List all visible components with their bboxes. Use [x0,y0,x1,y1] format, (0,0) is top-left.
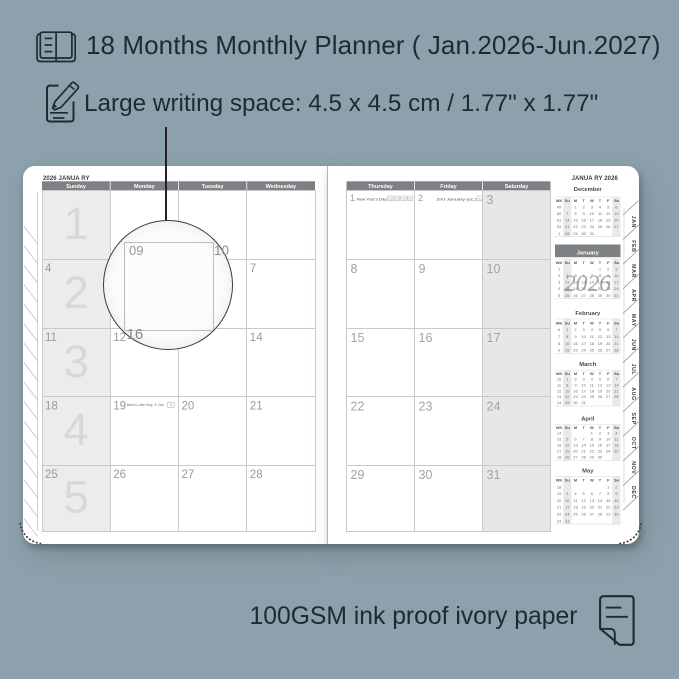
svg-text:19: 19 [598,388,603,393]
svg-text:24: 24 [614,286,619,291]
svg-text:24: 24 [590,224,595,229]
svg-text:8: 8 [574,211,577,216]
svg-text:29: 29 [590,455,595,460]
svg-text:9: 9 [574,382,577,387]
svg-text:4: 4 [574,491,577,496]
svg-text:13: 13 [606,382,611,387]
svg-text:CA: CA [395,197,399,201]
svg-text:29: 29 [573,231,578,236]
svg-text:17: 17 [614,280,619,285]
svg-text:MAY: MAY [630,314,636,327]
svg-text:Monday: Monday [134,184,156,190]
svg-text:Friday: Friday [440,184,457,190]
svg-text:15: 15 [573,218,578,223]
svg-text:14: 14 [614,382,619,387]
svg-text:WK: WK [556,260,563,265]
svg-text:2026: 2026 [564,271,611,297]
svg-text:23: 23 [573,394,578,399]
svg-text:27: 27 [606,348,611,353]
svg-text:7: 7 [599,491,602,496]
svg-text:T: T [582,260,585,265]
svg-text:DEC: DEC [630,486,636,499]
svg-text:6: 6 [558,327,561,332]
svg-text:25: 25 [614,449,619,454]
svg-text:20: 20 [573,449,578,454]
svg-text:27: 27 [182,469,195,481]
svg-text:F: F [607,425,610,430]
svg-text:1: 1 [591,431,594,436]
svg-text:10: 10 [487,262,501,276]
svg-text:1: 1 [574,204,577,209]
svg-text:4: 4 [599,204,602,209]
svg-text:A: A [170,403,173,407]
svg-text:JUN: JUN [630,339,636,351]
svg-text:21: 21 [250,401,263,413]
svg-text:MAR: MAR [630,264,636,278]
svg-text:18: 18 [590,341,595,346]
svg-text:19: 19 [581,505,586,510]
svg-text:March: March [579,362,597,368]
svg-text:23: 23 [557,518,562,523]
svg-text:14: 14 [565,218,570,223]
svg-text:NOV: NOV [630,461,636,474]
svg-text:WK: WK [556,371,563,376]
svg-text:2: 2 [558,273,561,278]
svg-text:25: 25 [45,469,58,481]
svg-text:12: 12 [598,334,603,339]
svg-text:T: T [582,425,585,430]
svg-text:3: 3 [63,336,88,387]
svg-text:28: 28 [565,231,570,236]
svg-text:21: 21 [557,505,562,510]
svg-text:22: 22 [606,505,611,510]
svg-text:JANUA RY 2026: JANUA RY 2026 [572,176,619,182]
svg-text:15: 15 [565,388,570,393]
svg-text:M: M [574,478,578,483]
svg-text:17: 17 [590,218,595,223]
svg-text:15: 15 [565,341,570,346]
svg-text:9: 9 [599,437,602,442]
svg-text:31: 31 [581,400,586,405]
svg-text:T: T [599,260,602,265]
svg-text:9: 9 [574,334,577,339]
svg-text:14: 14 [581,443,586,448]
svg-text:24: 24 [606,449,611,454]
svg-text:Su: Su [565,198,571,203]
svg-text:28: 28 [581,455,586,460]
svg-text:27: 27 [606,394,611,399]
svg-text:W: W [590,371,594,376]
svg-text:26: 26 [606,224,611,229]
svg-text:January: January [577,251,600,257]
svg-text:27: 27 [590,512,595,517]
svg-text:18: 18 [614,443,619,448]
svg-text:28: 28 [598,512,603,517]
svg-text:Su: Su [565,425,571,430]
svg-text:Tuesday: Tuesday [202,184,225,190]
svg-text:SEP: SEP [630,412,636,424]
svg-text:16: 16 [557,443,562,448]
svg-text:27: 27 [573,455,578,460]
svg-text:5: 5 [558,293,561,298]
svg-text:31: 31 [614,293,619,298]
svg-text:W: W [590,198,594,203]
svg-text:T: T [599,198,602,203]
svg-text:26: 26 [598,394,603,399]
svg-text:14: 14 [557,431,562,436]
svg-text:30: 30 [573,400,578,405]
svg-text:T: T [599,425,602,430]
svg-text:13: 13 [557,394,562,399]
svg-text:W: W [590,320,594,325]
svg-text:AUG: AUG [630,387,636,400]
svg-text:10: 10 [565,498,570,503]
svg-text:2026 JANUA RY: 2026 JANUA RY [43,176,90,182]
svg-text:8: 8 [607,491,610,496]
svg-text:May: May [582,469,594,475]
svg-text:14: 14 [598,498,603,503]
svg-text:49: 49 [557,204,562,209]
svg-text:3: 3 [487,193,494,207]
svg-text:20: 20 [557,498,562,503]
svg-text:28: 28 [250,469,263,481]
svg-text:3: 3 [583,327,586,332]
svg-text:52: 52 [557,224,562,229]
svg-text:6: 6 [607,327,610,332]
svg-text:16: 16 [581,218,586,223]
svg-text:10: 10 [581,382,586,387]
svg-text:8: 8 [558,341,561,346]
svg-text:11: 11 [573,498,578,503]
svg-text:JAN: JAN [630,216,636,228]
svg-text:Martin Luther King, Jr. Day: Martin Luther King, Jr. Day [127,403,164,407]
svg-text:12: 12 [557,388,562,393]
svg-text:Sa: Sa [614,371,620,376]
svg-text:24: 24 [487,400,501,414]
svg-text:4: 4 [591,377,594,382]
svg-text:WK: WK [556,320,563,325]
svg-text:M: M [574,425,578,430]
svg-text:2nd January (sc.): 2nd January (sc.) [437,197,478,202]
svg-text:10: 10 [581,334,586,339]
svg-text:1: 1 [350,193,355,203]
svg-text:17: 17 [581,341,586,346]
svg-text:17: 17 [606,443,611,448]
svg-text:14: 14 [614,334,619,339]
svg-text:21: 21 [598,505,603,510]
svg-text:31: 31 [590,231,595,236]
svg-text:T: T [599,478,602,483]
svg-text:5: 5 [583,491,586,496]
svg-text:4: 4 [591,327,594,332]
svg-text:F: F [607,478,610,483]
svg-text:16: 16 [573,388,578,393]
svg-text:11: 11 [557,382,562,387]
svg-text:W: W [590,260,594,265]
svg-text:18: 18 [557,455,562,460]
svg-text:US: US [388,197,392,201]
svg-text:22: 22 [565,394,570,399]
svg-text:24: 24 [581,394,586,399]
svg-text:3: 3 [591,204,594,209]
svg-text:25: 25 [598,224,603,229]
svg-text:12: 12 [606,211,611,216]
svg-text:Thursday: Thursday [368,184,394,190]
svg-text:2: 2 [63,267,88,318]
svg-text:23: 23 [614,505,619,510]
svg-text:14: 14 [557,400,562,405]
svg-text:2: 2 [418,193,423,203]
svg-text:Su: Su [565,260,571,265]
svg-text:18: 18 [557,484,562,489]
svg-text:5: 5 [63,472,88,523]
svg-text:21: 21 [614,341,619,346]
svg-text:FEB: FEB [630,240,636,252]
svg-text:26: 26 [598,348,603,353]
svg-text:17: 17 [487,331,501,345]
svg-text:22: 22 [565,348,570,353]
svg-text:12: 12 [565,443,570,448]
svg-text:22: 22 [590,449,595,454]
svg-text:15: 15 [606,498,611,503]
svg-text:19: 19 [598,341,603,346]
svg-text:7: 7 [558,334,561,339]
svg-text:25: 25 [590,348,595,353]
svg-text:18: 18 [590,388,595,393]
svg-text:22: 22 [557,512,562,517]
svg-text:25: 25 [590,394,595,399]
svg-text:New Year's Day: New Year's Day [357,197,387,202]
svg-text:31: 31 [565,518,570,523]
svg-text:26: 26 [113,469,126,481]
svg-text:22: 22 [573,224,578,229]
svg-text:10: 10 [606,437,611,442]
svg-text:Sa: Sa [614,478,620,483]
svg-text:21: 21 [581,449,586,454]
svg-text:F: F [607,198,610,203]
svg-text:23: 23 [419,400,433,414]
svg-text:M: M [574,371,578,376]
svg-text:25: 25 [573,512,578,517]
svg-text:6: 6 [591,491,594,496]
svg-text:F: F [607,260,610,265]
svg-text:AU: AU [408,197,412,201]
svg-text:23: 23 [581,224,586,229]
svg-text:18: 18 [598,218,603,223]
svg-text:3: 3 [583,377,586,382]
svg-text:6: 6 [574,437,577,442]
svg-text:51: 51 [557,218,562,223]
svg-text:16: 16 [614,498,619,503]
svg-text:2: 2 [574,327,577,332]
svg-text:20: 20 [606,341,611,346]
svg-text:9: 9 [583,211,586,216]
svg-text:9: 9 [419,262,426,276]
svg-text:29: 29 [606,512,611,517]
svg-text:2: 2 [574,377,577,382]
svg-text:Sa: Sa [614,425,620,430]
svg-text:8: 8 [591,437,594,442]
svg-text:15: 15 [557,437,562,442]
svg-text:17: 17 [581,388,586,393]
svg-text:5: 5 [599,327,602,332]
svg-text:February: February [575,311,601,317]
svg-text:5: 5 [607,204,610,209]
svg-text:24: 24 [565,512,570,517]
svg-text:APR: APR [630,289,636,302]
svg-text:3: 3 [607,431,610,436]
svg-text:F: F [607,320,610,325]
svg-text:OCT: OCT [630,437,636,450]
svg-text:20: 20 [614,218,619,223]
svg-text:T: T [599,371,602,376]
svg-text:16: 16 [598,443,603,448]
svg-text:28: 28 [614,394,619,399]
svg-text:Sunday: Sunday [66,184,87,190]
svg-text:10: 10 [590,211,595,216]
svg-text:Sa: Sa [614,198,620,203]
svg-text:16: 16 [419,331,433,345]
svg-text:T: T [599,320,602,325]
svg-text:14: 14 [250,332,263,344]
svg-text:M: M [574,320,578,325]
svg-text:April: April [581,417,595,423]
svg-text:7: 7 [583,437,586,442]
svg-text:23: 23 [573,348,578,353]
svg-text:WK: WK [556,478,563,483]
svg-text:7: 7 [250,263,256,275]
svg-text:20: 20 [590,505,595,510]
svg-text:UK: UK [401,197,405,201]
svg-text:17: 17 [565,505,570,510]
svg-text:11: 11 [590,334,595,339]
svg-text:M: M [574,260,578,265]
svg-text:Su: Su [565,320,571,325]
svg-text:16: 16 [573,341,578,346]
svg-text:11: 11 [590,382,595,387]
svg-text:12: 12 [581,498,586,503]
svg-text:13: 13 [606,334,611,339]
svg-text:2: 2 [599,431,602,436]
svg-text:1: 1 [558,231,561,236]
svg-text:30: 30 [581,231,586,236]
svg-text:Su: Su [565,371,571,376]
svg-text:8: 8 [351,262,358,276]
svg-text:Saturday: Saturday [505,184,529,190]
svg-text:11: 11 [45,332,57,344]
svg-text:6: 6 [607,377,610,382]
svg-text:21: 21 [565,224,570,229]
svg-text:22: 22 [351,400,365,414]
svg-text:W: W [590,478,594,483]
svg-text:30: 30 [614,512,619,517]
svg-text:29: 29 [351,468,365,482]
svg-text:4: 4 [63,404,88,455]
svg-text:17: 17 [557,449,562,454]
svg-text:19: 19 [606,218,611,223]
svg-text:12: 12 [598,382,603,387]
svg-text:T: T [582,371,585,376]
svg-text:1: 1 [558,266,561,271]
svg-text:1: 1 [607,484,610,489]
svg-text:WK: WK [556,425,563,430]
svg-text:9: 9 [558,348,561,353]
svg-text:21: 21 [614,388,619,393]
svg-text:20: 20 [182,401,195,413]
svg-text:December: December [574,187,603,193]
svg-text:20: 20 [606,388,611,393]
svg-text:23: 23 [598,449,603,454]
svg-text:26: 26 [565,455,570,460]
svg-text:13: 13 [614,211,619,216]
svg-text:18: 18 [573,505,578,510]
svg-text:18: 18 [45,401,58,413]
svg-text:1: 1 [63,198,88,249]
svg-text:50: 50 [557,211,562,216]
svg-text:11: 11 [598,211,603,216]
svg-text:Su: Su [565,478,571,483]
svg-text:26: 26 [581,512,586,517]
svg-text:28: 28 [614,348,619,353]
svg-text:19: 19 [565,449,570,454]
svg-text:24: 24 [581,348,586,353]
svg-text:Wednesday: Wednesday [266,184,297,190]
svg-text:10: 10 [614,273,619,278]
svg-text:5: 5 [599,377,602,382]
svg-text:Sa: Sa [614,320,620,325]
svg-text:30: 30 [598,455,603,460]
svg-text:T: T [582,198,585,203]
svg-text:M: M [574,198,578,203]
svg-text:WK: WK [556,198,563,203]
svg-text:3: 3 [558,280,561,285]
svg-text:30: 30 [419,468,433,482]
svg-text:10: 10 [557,377,562,382]
svg-text:4: 4 [558,286,561,291]
svg-text:13: 13 [590,498,595,503]
svg-text:2: 2 [583,204,586,209]
svg-text:13: 13 [573,443,578,448]
svg-text:31: 31 [487,468,501,482]
svg-text:29: 29 [565,400,570,405]
svg-text:19: 19 [113,401,126,413]
svg-text:15: 15 [590,443,595,448]
svg-text:W: W [590,425,594,430]
svg-text:sc: sc [478,197,482,201]
svg-text:4: 4 [45,263,52,275]
svg-text:JUL: JUL [630,364,636,376]
svg-text:27: 27 [614,224,619,229]
svg-text:F: F [607,371,610,376]
svg-text:15: 15 [351,331,365,345]
svg-text:T: T [582,320,585,325]
svg-text:Sa: Sa [614,260,620,265]
svg-text:19: 19 [557,491,562,496]
svg-text:T: T [582,478,585,483]
